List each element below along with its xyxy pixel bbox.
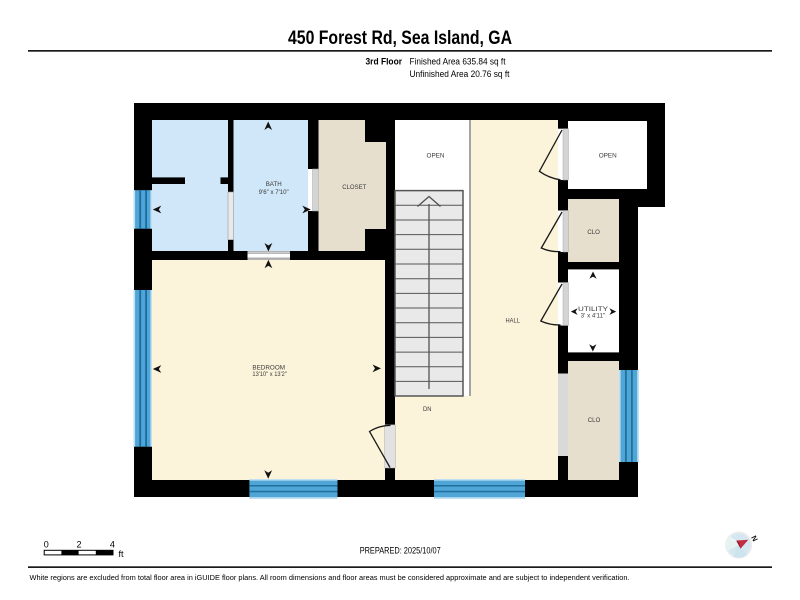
svg-text:DN: DN	[423, 407, 432, 413]
svg-text:CLOSET: CLOSET	[342, 184, 366, 191]
svg-text:13'10" x 13'2": 13'10" x 13'2"	[252, 372, 287, 378]
svg-text:450 Forest Rd, Sea Island, GA: 450 Forest Rd, Sea Island, GA	[288, 28, 512, 49]
svg-text:UTILITY: UTILITY	[578, 306, 609, 313]
svg-text:OPEN: OPEN	[427, 153, 445, 160]
svg-text:CLO: CLO	[588, 417, 601, 424]
svg-text:3' x 4'11": 3' x 4'11"	[581, 314, 606, 320]
svg-text:HALL: HALL	[506, 318, 521, 325]
svg-text:White regions are excluded fro: White regions are excluded from total fl…	[30, 575, 630, 582]
svg-text:Unfinished Area 20.76 sq ft: Unfinished Area 20.76 sq ft	[410, 69, 510, 79]
svg-text:3rd Floor: 3rd Floor	[366, 57, 403, 67]
svg-text:CLO: CLO	[587, 229, 600, 236]
svg-text:0: 0	[44, 540, 49, 550]
svg-text:4: 4	[110, 540, 115, 550]
svg-text:BEDROOM: BEDROOM	[252, 365, 285, 372]
svg-text:OPEN: OPEN	[599, 153, 617, 160]
svg-text:BATH: BATH	[266, 181, 282, 188]
svg-text:ft: ft	[119, 549, 125, 559]
svg-text:Finished Area 635.84 sq ft: Finished Area 635.84 sq ft	[410, 57, 506, 67]
svg-text:9'6" x 7'10": 9'6" x 7'10"	[259, 190, 289, 196]
svg-text:PREPARED: 2025/10/07: PREPARED: 2025/10/07	[360, 546, 441, 556]
svg-text:2: 2	[76, 540, 81, 550]
